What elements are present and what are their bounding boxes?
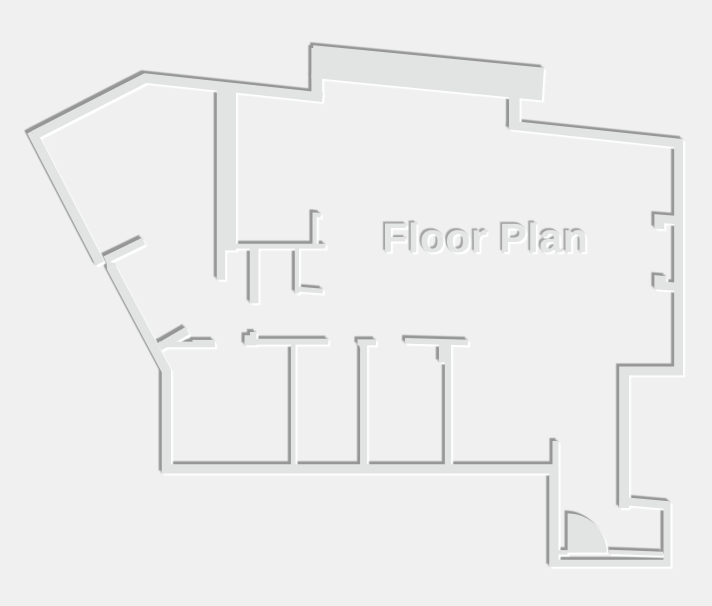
svg-text:Floor Plan: Floor Plan [382, 215, 588, 261]
